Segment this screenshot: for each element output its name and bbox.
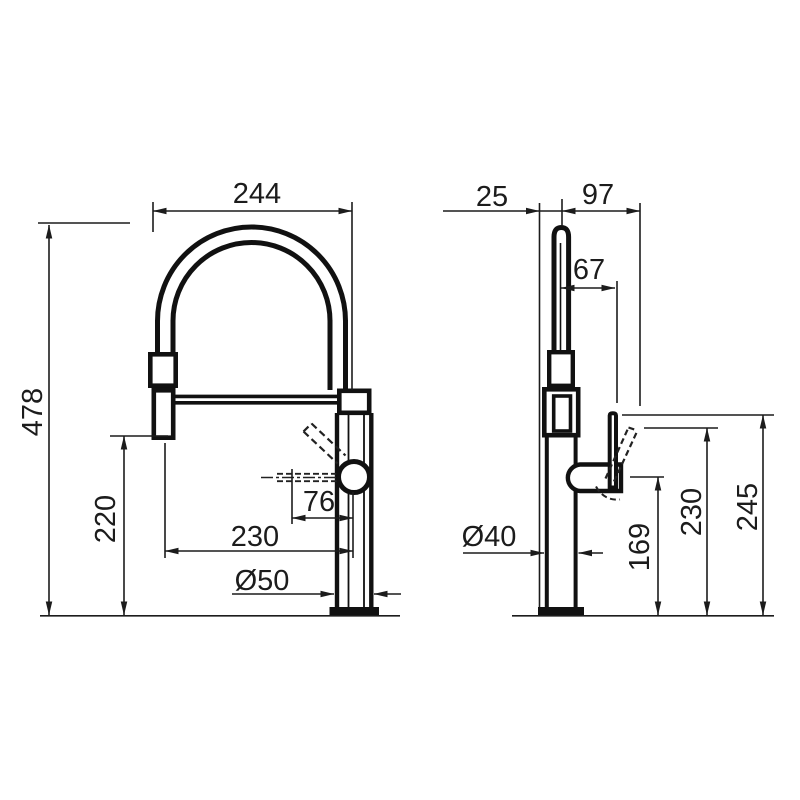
dim-body-diameter: Ø40 xyxy=(462,521,603,553)
hose-right-tube xyxy=(330,320,346,390)
hose-left-tube xyxy=(158,320,174,354)
dim-lever-tilted-height: 230 xyxy=(644,428,718,615)
support-bar xyxy=(175,396,340,402)
dim-label-body-diameter: Ø40 xyxy=(462,521,517,553)
side-socket-inner xyxy=(554,396,571,431)
dim-label-lever-height: 245 xyxy=(732,483,764,531)
dim-label-base-diameter-front: Ø50 xyxy=(235,565,290,597)
spray-head-collar xyxy=(150,354,175,385)
hose-inner-arc xyxy=(173,243,330,322)
swivel-joint xyxy=(339,462,370,493)
dim-base-diameter-front: Ø50 xyxy=(232,565,401,597)
dim-label-outlet-reach: 230 xyxy=(231,521,279,553)
phantom-sprayer xyxy=(261,424,346,482)
side-collar xyxy=(549,352,573,386)
side-view-dimensions: 25 97 67 Ø40 169 230 xyxy=(443,179,774,616)
spray-head-body xyxy=(154,390,173,437)
dim-outlet-height-side: 169 xyxy=(624,477,664,615)
dim-outlet-height: 220 xyxy=(90,436,168,615)
drawing-canvas: 244 478 220 230 76 xyxy=(0,0,800,800)
dim-label-nozzle-offset: 76 xyxy=(303,486,335,518)
dim-label-spout-offset: 25 xyxy=(476,181,508,213)
mixer-column xyxy=(337,413,371,608)
dim-label-outlet-height: 220 xyxy=(90,495,122,543)
handle-lever xyxy=(610,413,616,487)
faucet-dimension-drawing: 244 478 220 230 76 xyxy=(0,0,800,800)
side-column xyxy=(547,437,576,608)
dim-label-lever-offset: 67 xyxy=(573,254,605,286)
hose-socket-block xyxy=(339,391,369,413)
front-view xyxy=(150,227,379,617)
dim-overall-height: 478 xyxy=(17,223,130,615)
dim-label-overall-height: 478 xyxy=(17,388,49,436)
dim-label-lever-tilted-height: 230 xyxy=(676,488,708,536)
dim-label-outlet-height-side: 169 xyxy=(624,523,656,571)
dim-label-lever-reach: 97 xyxy=(582,179,614,211)
dim-label-spout-width: 244 xyxy=(233,178,281,210)
